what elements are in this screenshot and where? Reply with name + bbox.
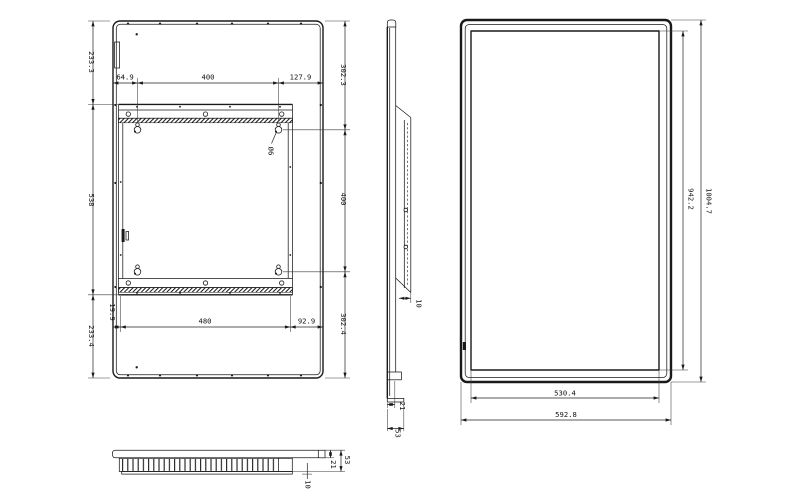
- dim-bottom-bezel-depth: 21: [329, 460, 338, 469]
- dim-rear-right-bottom: 302.4: [339, 313, 348, 335]
- dim-rear-bottom-right: 92.9: [298, 317, 315, 326]
- bottom-back-plate: [122, 472, 293, 475]
- side-bracket: [396, 106, 411, 293]
- bottom-bezel-bar: [113, 450, 326, 458]
- bottom-vent-grille: [122, 459, 278, 471]
- keyhole-top-right: [275, 123, 282, 133]
- cad-drawing: Ø6 233.3 538 233.4 302.3 400 302.4: [0, 0, 800, 500]
- keyhole-top-left: [134, 123, 141, 133]
- dim-side-bracket-offset: 10: [415, 299, 424, 308]
- dim-rear-top-right: 127.9: [290, 73, 312, 82]
- dim-rear-right-top: 302.3: [339, 64, 348, 86]
- dim-rear-top-mid: 400: [202, 73, 215, 82]
- hole-diameter-callout: Ø6: [267, 132, 277, 155]
- keyhole-mounts: [134, 123, 282, 275]
- rear-view: Ø6 233.3 538 233.4 302.3 400 302.4: [87, 21, 350, 378]
- dim-front-screen-width: 530.4: [554, 389, 576, 398]
- dim-rear-hole: Ø6: [267, 147, 276, 156]
- bottom-view: 21 53 10: [113, 450, 353, 489]
- bracket-bottom-hatch: [119, 288, 293, 293]
- front-screen: [471, 31, 659, 370]
- drawing-sheet: Ø6 233.3 538 233.4 302.3 400 302.4: [0, 0, 800, 500]
- dim-rear-left-top: 233.3: [87, 51, 96, 73]
- dim-side-total-depth: 53: [394, 429, 403, 438]
- dim-front-total-width: 592.8: [555, 410, 577, 419]
- dim-rear-bottom-mid: 480: [199, 317, 212, 326]
- dim-rear-bottom-left: 19.9: [108, 303, 117, 320]
- dim-rear-left-mid: 538: [87, 194, 96, 207]
- rear-dimensions: 233.3 538 233.4 302.3 400 302.4 64.9 400…: [87, 21, 350, 378]
- rear-side-slot: [115, 42, 120, 68]
- keyhole-bottom-left: [134, 265, 141, 275]
- keyhole-bottom-right: [275, 265, 282, 275]
- dim-rear-left-bottom: 233.4: [87, 325, 96, 347]
- dim-side-bottom-depth: 21: [398, 402, 407, 411]
- front-bezel-inner: [465, 25, 667, 378]
- front-dimensions: 942.2 1004.7 530.4 592.8: [461, 20, 714, 425]
- front-panel-outline: [461, 20, 671, 382]
- front-bezel-sensor: [463, 342, 466, 350]
- dim-front-total-height: 1004.7: [705, 188, 714, 214]
- front-view: 942.2 1004.7 530.4 592.8: [461, 20, 714, 425]
- side-view: 10 21 53: [387, 20, 423, 438]
- dim-bottom-total-depth: 53: [343, 456, 352, 465]
- dim-rear-right-mid: 400: [339, 193, 348, 206]
- side-top-cap: [387, 20, 396, 27]
- dim-front-screen-height: 942.2: [687, 188, 696, 210]
- bracket-top-hatch: [119, 118, 293, 123]
- rear-mount-bracket: [119, 104, 293, 294]
- dim-rear-top-left: 64.9: [116, 73, 133, 82]
- bottom-dimensions: 21 53 10: [292, 450, 352, 489]
- dim-bottom-vent-offset: 10: [304, 480, 313, 489]
- side-dimensions: 10 21 53: [387, 293, 423, 438]
